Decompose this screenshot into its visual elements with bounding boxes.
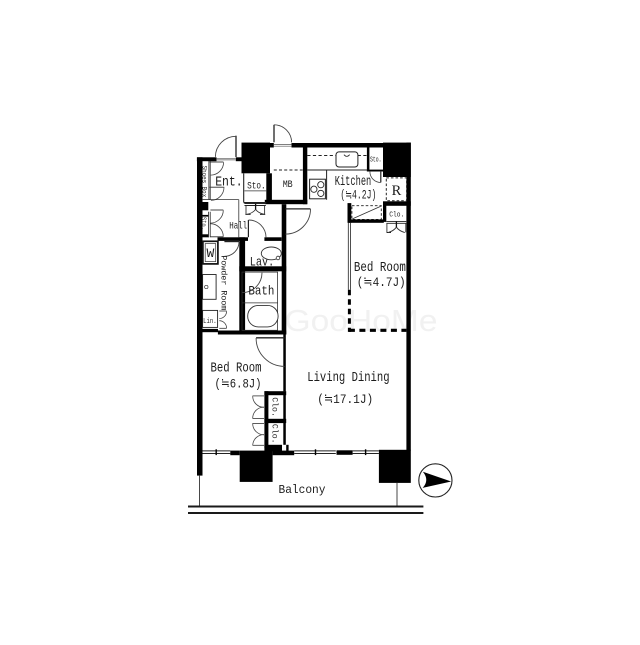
svg-text:MB: MB [283,180,293,191]
svg-text:Clo.: Clo. [270,424,280,444]
svg-text:Sto.: Sto. [247,181,266,192]
svg-text:Clo.: Clo. [389,212,404,220]
svg-text:R: R [392,183,402,199]
svg-text:W: W [206,246,214,261]
svg-text:(≒4.7J): (≒4.7J) [357,275,406,290]
svg-text:Living Dining: Living Dining [307,370,389,386]
svg-text:(≒4.2J): (≒4.2J) [340,188,376,202]
svg-text:Powder Room: Powder Room [219,255,229,310]
svg-text:(≒6.8J): (≒6.8J) [215,377,262,392]
svg-text:Hall: Hall [229,220,247,232]
svg-text:Bed Room: Bed Room [211,360,262,376]
svg-text:(≒17.1J): (≒17.1J) [317,392,373,407]
svg-text:GooHoMe: GooHoMe [285,303,438,338]
svg-text:Balcony: Balcony [279,483,326,497]
svg-text:Bath: Bath [248,285,274,299]
svg-text:Sto.: Sto. [370,157,382,165]
svg-text:Ent.: Ent. [215,176,242,191]
svg-text:Bed Room: Bed Room [354,260,406,276]
svg-text:Sto.: Sto. [200,217,207,230]
svg-text:Clo.: Clo. [270,397,280,417]
svg-text:Shoes Box: Shoes Box [201,166,208,198]
svg-text:Lin.: Lin. [203,318,217,326]
